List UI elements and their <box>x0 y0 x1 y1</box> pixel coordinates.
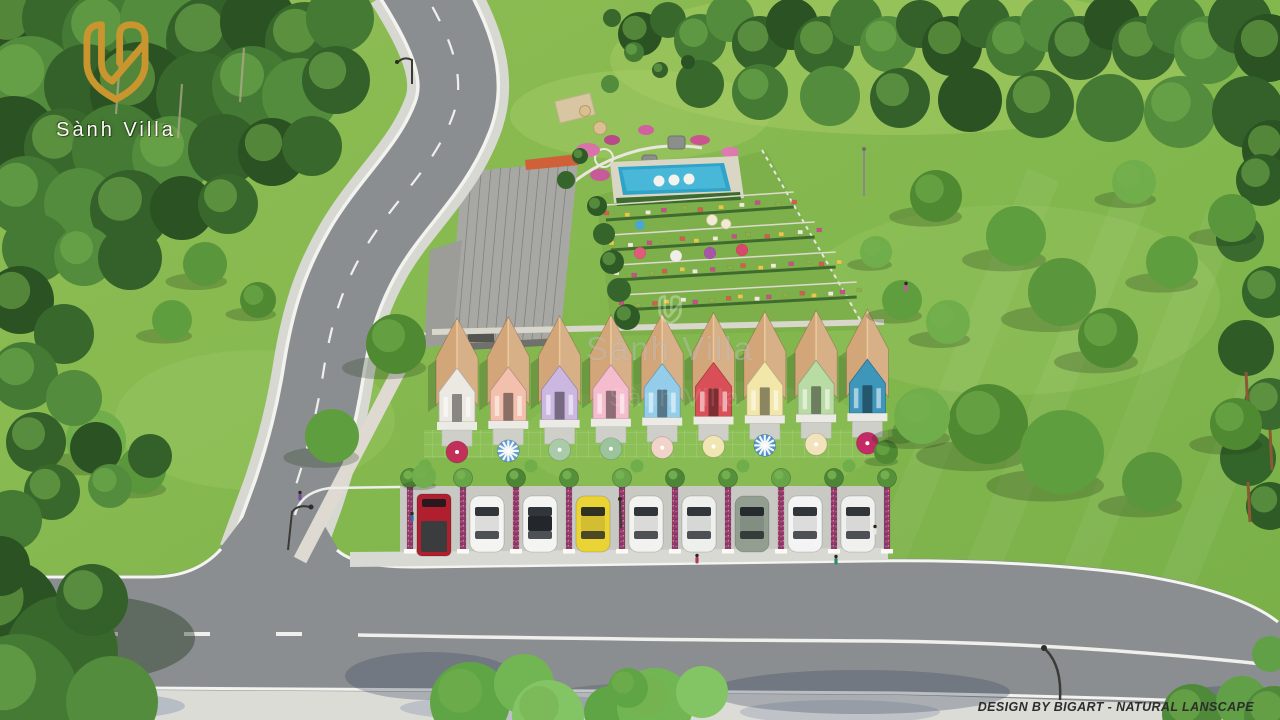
swimming-pool <box>610 156 744 206</box>
patio-umbrella <box>497 440 519 462</box>
scene-render <box>0 0 1280 720</box>
patio-umbrella <box>703 436 725 458</box>
parked-car <box>788 496 822 552</box>
parked-car <box>523 496 557 552</box>
patio-umbrella <box>651 437 673 459</box>
pedestrian <box>904 282 907 292</box>
patio-umbrella <box>600 438 622 460</box>
parked-car <box>576 496 610 552</box>
patio-umbrella <box>805 433 827 455</box>
pedestrian <box>695 554 698 564</box>
parked-car <box>682 496 716 552</box>
parked-car <box>470 496 504 552</box>
pedestrian <box>873 525 876 535</box>
parked-car <box>629 496 663 552</box>
pedestrian <box>298 491 301 501</box>
pedestrian <box>834 555 837 565</box>
parked-car <box>417 494 451 556</box>
patio-umbrella <box>754 434 776 456</box>
patio-umbrella <box>446 441 468 463</box>
cars <box>417 494 875 556</box>
patio-umbrella <box>549 439 571 461</box>
aerial-render: Sành Villa Sành Villa Sành Villa DESIGN … <box>0 0 1280 720</box>
pedestrian <box>410 512 413 522</box>
parked-car <box>841 496 875 552</box>
parked-car <box>735 496 769 552</box>
